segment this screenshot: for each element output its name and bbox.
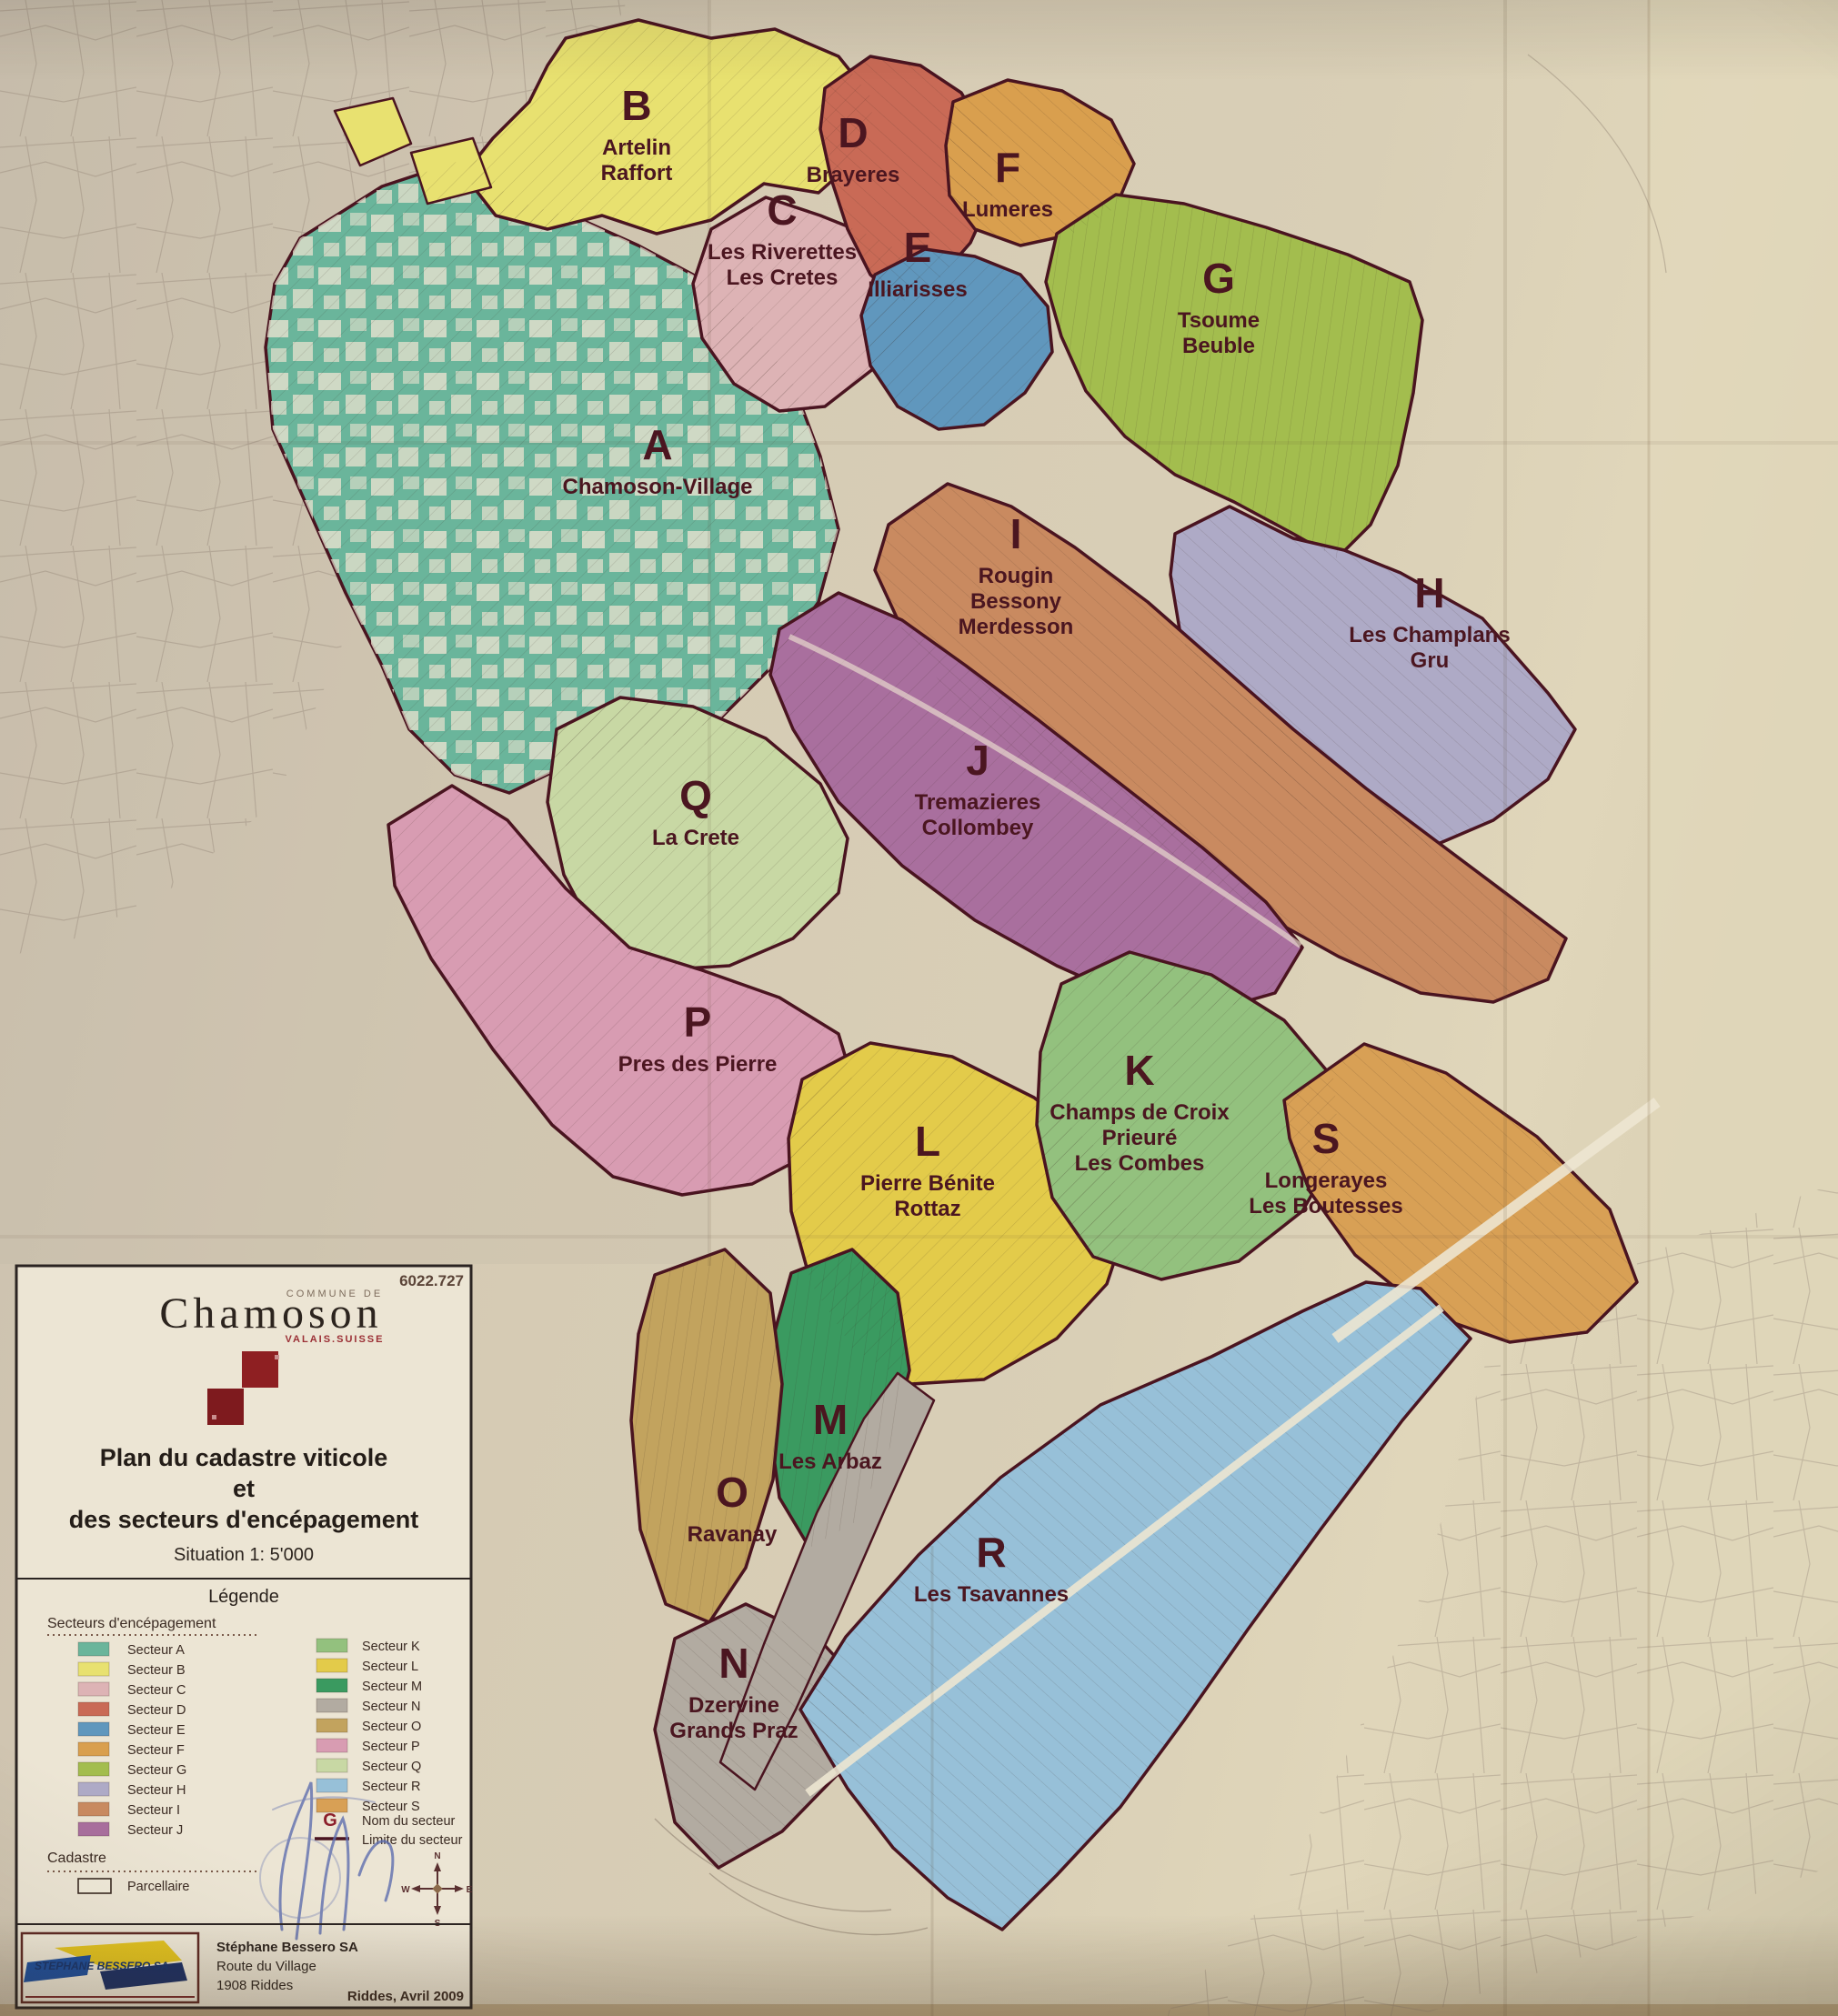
cadastre-heading: Cadastre [47,1851,106,1866]
title-line2: et [233,1475,255,1502]
legend-swatch-M [316,1679,347,1692]
firm-name: Stéphane Bessero SA [216,1940,358,1955]
legend-entry-I: Secteur I [127,1803,180,1818]
sector-H-name-line: Les Champlans [1349,623,1510,647]
situation-scale: Situation 1: 5'000 [174,1545,314,1565]
sector-H-letter: H [1414,569,1444,617]
legend-entry-A: Secteur A [127,1643,185,1658]
sector-O-name-line: Ravanay [688,1522,778,1547]
parcel-label: Parcellaire [127,1880,190,1894]
legend-swatch-R [316,1779,347,1792]
photographed-map: AChamoson-VillageBArtelinRaffortCLes Riv… [0,0,1838,2016]
legend-swatch-B [78,1662,109,1676]
parcel-swatch [78,1879,111,1893]
firm-logo: STEPHANE BESSERO SA [22,1933,198,2002]
legend-swatch-G [78,1762,109,1776]
legend-swatch-I [78,1802,109,1816]
legend-swatch-P [316,1739,347,1752]
legend-entry-H: Secteur H [127,1783,186,1798]
legend-swatch-N [316,1699,347,1712]
legend-swatch-F [78,1742,109,1756]
sector-K-name-line: Champs de Croix [1050,1100,1230,1125]
sectors-heading: Secteurs d'encépagement [47,1616,216,1631]
sector-F-letter: F [995,144,1020,191]
firm-city: 1908 Riddes [216,1978,293,1993]
sector-N-name-line: Dzervine [688,1693,779,1718]
legend-swatch-L [316,1659,347,1672]
sector-G-name-line: Beuble [1182,334,1255,358]
sector-N-name-line: Grands Praz [669,1719,798,1743]
sector-S-name-line: Longerayes [1265,1168,1388,1193]
sector-G-name-line: Tsoume [1178,308,1260,333]
sector-I-name-line: Bessony [970,589,1062,614]
sector-B-name-line: Raffort [601,161,673,186]
sector-R-name-line: Les Tsavannes [914,1582,1069,1607]
sector-S-letter: S [1312,1115,1341,1162]
sector-G-letter: G [1202,255,1235,302]
title-line1: Plan du cadastre viticole [100,1444,388,1471]
compass-w: W [401,1885,410,1895]
legend-entry-C: Secteur C [127,1683,186,1698]
sector-C-name-line: Les Cretes [727,266,839,290]
legend-entry-G: Secteur G [127,1763,186,1778]
sector-K-name-line: Prieuré [1102,1126,1178,1150]
sector-J-name-line: Tremazieres [915,790,1041,815]
sector-J-letter: J [966,737,989,784]
name-symbol: G [323,1810,337,1830]
sector-D-name-line: Brayeres [807,163,900,187]
legend-swatch-C [78,1682,109,1696]
sector-K-letter: K [1124,1047,1154,1094]
title-line3: des secteurs d'encépagement [69,1506,419,1533]
legend-box: 6022.727 COMMUNE DE Chamoson VALAIS.SUIS… [16,1266,473,2008]
legend-entry-B: Secteur B [127,1663,186,1678]
sector-S-name-line: Les Boutesses [1249,1194,1402,1219]
compass-e: E [467,1885,473,1895]
region-label: VALAIS.SUISSE [286,1334,385,1345]
sector-M-name-line: Les Arbaz [778,1449,882,1474]
sector-O-letter: O [716,1469,748,1516]
sector-C-name-line: Les Riverettes [708,240,857,265]
sector-Q-letter: Q [679,772,712,819]
commune-name: Chamoson [159,1289,382,1338]
compass-n: N [434,1851,440,1861]
legend-entry-F: Secteur F [127,1743,185,1758]
legend-swatch-D [78,1702,109,1716]
sector-E-name-line: Illiarisses [868,277,967,302]
legend-swatch-H [78,1782,109,1796]
sector-E-letter: E [904,224,932,271]
legend-swatch-K [316,1639,347,1652]
legend-swatch-A [78,1642,109,1656]
sector-J-name-line: Collombey [922,816,1034,840]
legend-entry-L: Secteur L [362,1660,418,1674]
legend-entry-J: Secteur J [127,1823,183,1838]
legend-entry-E: Secteur E [127,1723,186,1738]
legend-swatch-J [78,1822,109,1836]
sector-L-name-line: Rottaz [894,1197,960,1221]
sector-K-name-line: Les Combes [1075,1151,1205,1176]
sector-F-name-line: Lumeres [962,197,1053,222]
sector-A-letter: A [642,421,672,468]
legend-entry-D: Secteur D [127,1703,186,1718]
legend-heading: Légende [208,1587,279,1607]
legend-entry-N: Secteur N [362,1700,420,1714]
sector-D-letter: D [838,109,868,156]
date-note: Riddes, Avril 2009 [347,1989,464,2004]
legend-swatch-O [316,1719,347,1732]
sector-B-name-line: Artelin [602,135,671,160]
sector-A-name-line: Chamoson-Village [563,475,753,499]
sector-R-letter: R [976,1529,1006,1576]
sector-Q-name-line: La Crete [652,826,739,850]
sector-B-letter: B [621,82,651,129]
sector-L-letter: L [915,1118,940,1165]
legend-entry-M: Secteur M [362,1680,422,1694]
sector-I-letter: I [1010,510,1022,557]
legend-entry-P: Secteur P [362,1740,420,1754]
legend-swatch-E [78,1722,109,1736]
sector-M-letter: M [813,1396,848,1443]
legend-swatch-Q [316,1759,347,1772]
sector-N-letter: N [718,1640,748,1687]
sector-P-name-line: Pres des Pierre [618,1052,778,1077]
sector-L-name-line: Pierre Bénite [860,1171,995,1196]
legend-entry-R: Secteur R [362,1780,420,1794]
sheet-number: 6022.727 [399,1272,464,1289]
firm-street: Route du Village [216,1959,316,1974]
name-label: Nom du secteur [362,1814,456,1829]
sector-I-name-line: Rougin [979,564,1054,588]
sector-C-letter: C [767,186,797,234]
legend-entry-K: Secteur K [362,1640,420,1654]
firm-logo-text: STEPHANE BESSERO SA [35,1960,168,1972]
sector-H-name-line: Gru [1411,648,1450,673]
legend-entry-Q: Secteur Q [362,1760,421,1774]
sector-I-name-line: Merdesson [959,615,1074,639]
limit-label: Limite du secteur [362,1833,463,1848]
sector-P-letter: P [684,998,712,1046]
legend-entry-O: Secteur O [362,1720,421,1734]
map-canvas: AChamoson-VillageBArtelinRaffortCLes Riv… [0,0,1838,2016]
